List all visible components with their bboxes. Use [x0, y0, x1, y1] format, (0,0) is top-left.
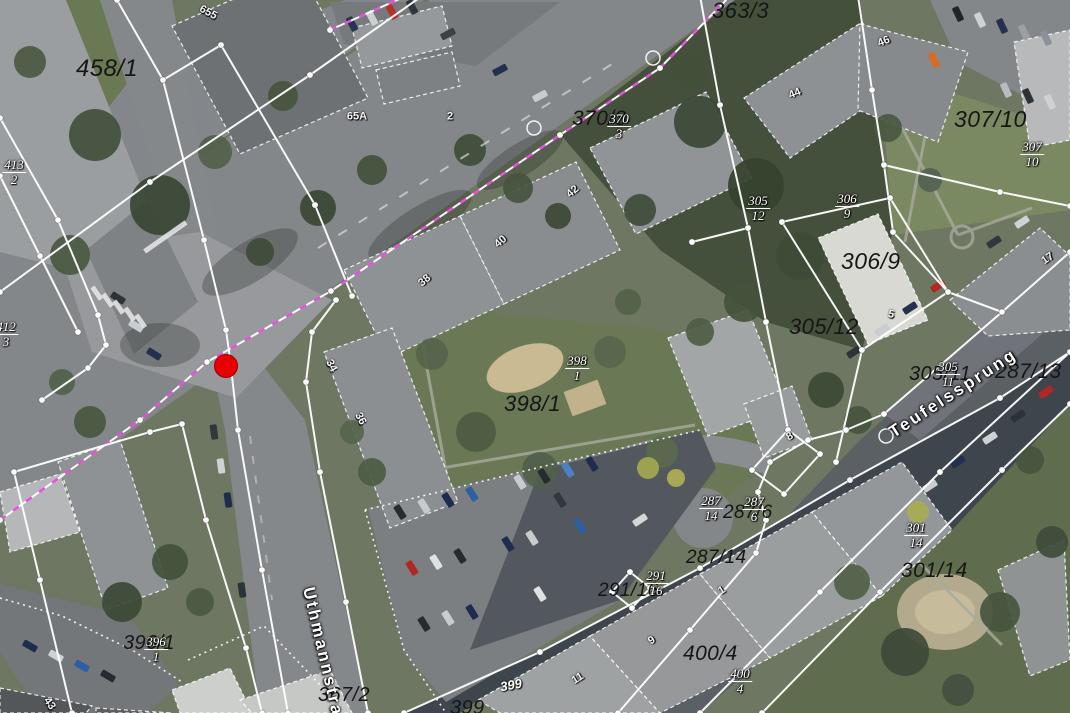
tree-canopy: [503, 173, 533, 203]
boundary-vertex-dot: [349, 293, 355, 299]
boundary-vertex-dot: [629, 605, 635, 611]
boundary-vertex-dot: [817, 451, 823, 457]
tree-canopy: [942, 674, 974, 706]
boundary-vertex-dot: [945, 289, 951, 295]
boundary-vertex-dot: [755, 489, 761, 495]
boundary-vertex-dot: [103, 342, 109, 348]
boundary-vertex-dot: [557, 132, 563, 138]
boundary-vertex-dot: [999, 467, 1005, 473]
boundary-vertex-dot: [697, 565, 703, 571]
tree-canopy: [881, 628, 929, 676]
boundary-vertex-dot: [717, 102, 723, 108]
boundary-vertex-dot: [887, 195, 893, 201]
boundary-vertex-dot: [779, 219, 785, 225]
boundary-vertex-dot: [37, 577, 43, 583]
boundary-vertex-dot: [160, 77, 166, 83]
boundary-vertex-dot: [11, 469, 17, 475]
boundary-vertex-dot: [847, 477, 853, 483]
boundary-vertex-dot: [877, 589, 883, 595]
boundary-vertex-dot: [781, 491, 787, 497]
boundary-vertex-dot: [303, 379, 309, 385]
boundary-vertex-dot: [817, 589, 823, 595]
boundary-vertex-dot: [37, 253, 43, 259]
tree-canopy: [545, 203, 571, 229]
tree-canopy: [357, 155, 387, 185]
boundary-vertex-dot: [881, 162, 887, 168]
tree-canopy: [358, 458, 386, 486]
tree-canopy: [186, 588, 214, 616]
boundary-vertex-dot: [85, 365, 91, 371]
tree-canopy: [907, 501, 929, 523]
tree-canopy: [14, 46, 46, 78]
boundary-vertex-dot: [333, 297, 339, 303]
tree-canopy: [624, 194, 656, 226]
tree-canopy: [416, 338, 448, 370]
boundary-vertex-dot: [997, 395, 1003, 401]
boundary-vertex-dot: [763, 517, 769, 523]
tree-canopy: [834, 564, 870, 600]
boundary-vertex-dot: [647, 585, 653, 591]
boundary-vertex-dot: [609, 589, 615, 595]
tree-canopy: [456, 412, 496, 452]
tree-canopy: [980, 592, 1020, 632]
tree-canopy: [198, 135, 232, 169]
tree-canopy: [246, 238, 274, 266]
tree-canopy: [454, 134, 486, 166]
boundary-vertex-dot: [235, 427, 241, 433]
tree-canopy: [615, 289, 641, 315]
boundary-vertex-dot: [343, 599, 349, 605]
boundary-vertex-dot: [223, 327, 229, 333]
tree-canopy: [667, 469, 685, 487]
boundary-vertex-dot: [312, 202, 318, 208]
boundary-vertex-dot: [55, 217, 61, 223]
boundary-vertex-dot: [937, 469, 943, 475]
tree-canopy: [69, 109, 121, 161]
boundary-vertex-dot: [763, 319, 769, 325]
boundary-vertex-dot: [75, 329, 81, 335]
boundary-vertex-dot: [687, 627, 693, 633]
boundary-vertex-dot: [843, 427, 849, 433]
tree-canopy: [808, 372, 844, 408]
boundary-vertex-dot: [179, 421, 185, 427]
boundary-vertex-dot: [890, 229, 896, 235]
boundary-vertex-dot: [997, 189, 1003, 195]
boundary-vertex-dot: [218, 42, 224, 48]
boundary-vertex-dot: [243, 645, 249, 651]
boundary-vertex-dot: [859, 347, 865, 353]
boundary-vertex-dot: [833, 459, 839, 465]
boundary-vertex-dot: [307, 72, 313, 78]
tree-canopy: [686, 318, 714, 346]
boundary-vertex-dot: [745, 225, 751, 231]
aerial-map-viewport[interactable]: 458/1363/3370/3307/10306/9305/12398/1305…: [0, 0, 1070, 713]
boundary-vertex-dot: [309, 329, 315, 335]
boundary-vertex-dot: [869, 87, 875, 93]
boundary-vertex-dot: [805, 437, 811, 443]
boundary-vertex-dot: [137, 417, 143, 423]
boundary-vertex-dot: [328, 288, 334, 294]
boundary-vertex-dot: [627, 569, 633, 575]
tree-canopy: [1016, 446, 1044, 474]
aerial-basemap: [0, 0, 1070, 713]
tree-canopy: [776, 232, 824, 280]
tree-canopy: [637, 457, 659, 479]
boundary-vertex-dot: [881, 411, 887, 417]
selected-location-marker[interactable]: [215, 355, 238, 378]
boundary-vertex-dot: [95, 312, 101, 318]
boundary-vertex-dot: [39, 397, 45, 403]
boundary-vertex-dot: [767, 459, 773, 465]
tree-canopy: [74, 406, 106, 438]
boundary-vertex-dot: [785, 427, 791, 433]
boundary-vertex-dot: [147, 429, 153, 435]
tree-canopy: [300, 190, 336, 226]
boundary-vertex-dot: [317, 469, 323, 475]
boundary-vertex-dot: [657, 65, 663, 71]
boundary-vertex-dot: [749, 467, 755, 473]
tree-canopy: [724, 282, 764, 322]
boundary-vertex-dot: [147, 179, 153, 185]
boundary-vertex-dot: [204, 359, 210, 365]
boundary-vertex-dot: [537, 649, 543, 655]
boundary-vertex-dot: [689, 239, 695, 245]
boundary-vertex-dot: [203, 517, 209, 523]
tree-canopy: [49, 369, 75, 395]
tree-canopy: [340, 420, 364, 444]
boundary-vertex-dot: [259, 567, 265, 573]
boundary-vertex-dot: [753, 550, 759, 556]
tree-canopy: [152, 544, 188, 580]
tree-canopy: [728, 158, 784, 214]
tree-canopy: [918, 168, 942, 192]
boundary-vertex-dot: [201, 237, 207, 243]
tree-canopy: [672, 54, 708, 90]
tree-canopy: [594, 336, 626, 368]
boundary-vertex-dot: [327, 27, 333, 33]
tree-canopy: [102, 582, 142, 622]
tree-canopy: [1036, 526, 1068, 558]
boundary-vertex-dot: [999, 309, 1005, 315]
